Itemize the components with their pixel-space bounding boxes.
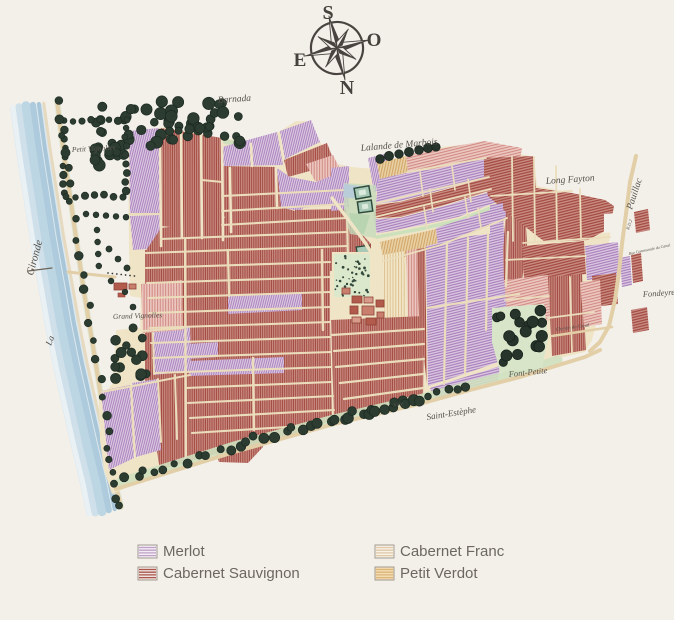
- svg-text:E: E: [294, 50, 307, 71]
- svg-text:O: O: [367, 30, 382, 51]
- svg-text:S: S: [322, 2, 333, 24]
- svg-text:Merlot: Merlot: [163, 543, 206, 560]
- svg-text:Cabernet Sauvignon: Cabernet Sauvignon: [163, 565, 300, 582]
- svg-text:Grand Vignolles: Grand Vignolles: [113, 310, 163, 321]
- svg-text:N: N: [340, 77, 355, 99]
- svg-text:Cabernet Franc: Cabernet Franc: [400, 543, 505, 560]
- svg-text:Petit Verdot: Petit Verdot: [400, 565, 478, 582]
